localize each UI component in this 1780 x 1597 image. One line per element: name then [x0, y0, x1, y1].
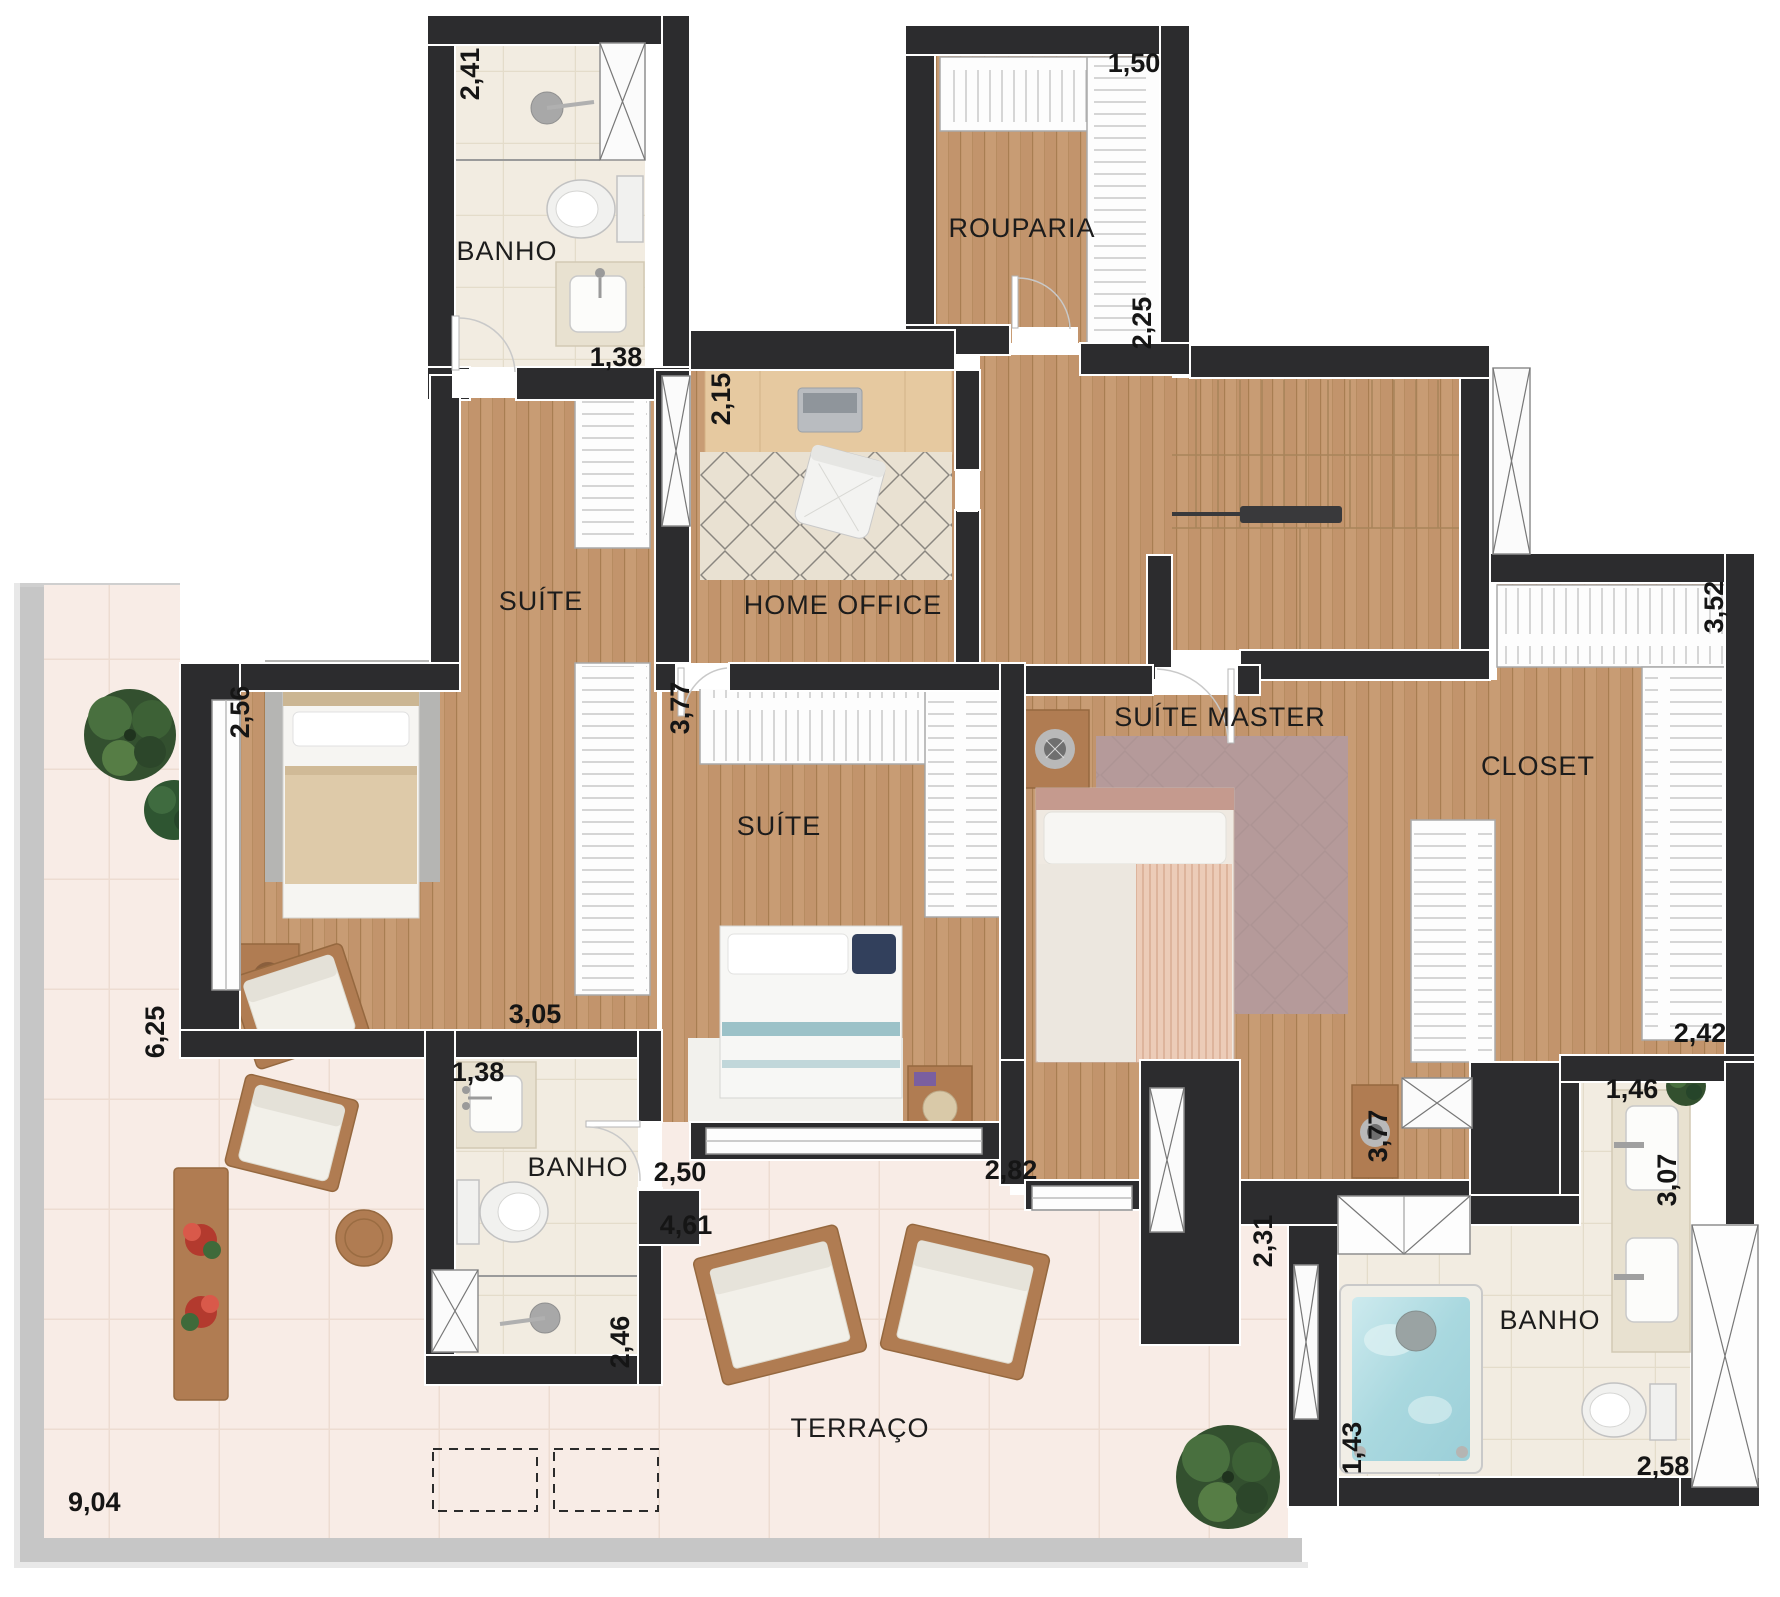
dim-6-25: 6,25	[140, 1006, 170, 1059]
room-label-suite-master: SUÍTE MASTER	[1114, 702, 1326, 732]
floorplan-page: { "rooms": { "banho_top": "BANHO", "roup…	[0, 0, 1780, 1597]
book	[914, 1072, 936, 1086]
room-label-banho-master: BANHO	[1499, 1305, 1600, 1335]
dim-1-43: 1,43	[1337, 1422, 1367, 1475]
dim-3-52: 3,52	[1699, 581, 1729, 634]
floor-plan: BANHO ROUPARIA SUÍTE HOME OFFICE SUÍTE S…	[0, 0, 1780, 1597]
room-label-suite1: SUÍTE	[499, 586, 584, 616]
casement-window	[1338, 1196, 1470, 1254]
room-label-home-office: HOME OFFICE	[744, 590, 943, 620]
window-east	[1692, 1225, 1758, 1487]
dim-3-05: 3,05	[509, 999, 562, 1029]
dim-2-15: 2,15	[706, 373, 736, 426]
room-label-suite2: SUÍTE	[737, 811, 822, 841]
dim-2-46: 2,46	[605, 1316, 635, 1369]
dim-2-31: 2,31	[1248, 1215, 1278, 1268]
dim-2-56: 2,56	[225, 686, 255, 739]
window-suite2-south	[706, 1128, 982, 1154]
shaft-banho-top	[600, 43, 645, 160]
room-label-terraco: TERRAÇO	[790, 1413, 929, 1443]
room-label-banho-top: BANHO	[456, 236, 557, 266]
plant-top-left	[84, 689, 176, 781]
stair-handrail	[1240, 506, 1342, 523]
dim-1-38-mid: 1,38	[452, 1057, 505, 1087]
shaft-stairs	[1493, 368, 1530, 554]
dim-1-50: 1,50	[1108, 48, 1161, 78]
dim-9-04: 9,04	[68, 1487, 121, 1517]
shaft-banho-middle	[432, 1270, 478, 1352]
dim-2-58: 2,58	[1637, 1451, 1690, 1481]
shaft-master-south	[1150, 1088, 1184, 1232]
dim-3-77-suite2: 3,77	[665, 682, 695, 735]
shaft-banho-master	[1294, 1265, 1318, 1419]
room-label-closet: CLOSET	[1481, 751, 1595, 781]
room-label-rouparia: ROUPARIA	[948, 213, 1095, 243]
dim-3-07: 3,07	[1652, 1154, 1682, 1207]
door-corridor	[957, 472, 978, 512]
dim-2-25: 2,25	[1127, 297, 1157, 350]
terrace-bench	[174, 1168, 228, 1400]
dim-4-61: 4,61	[660, 1210, 713, 1240]
dim-2-82: 2,82	[985, 1155, 1038, 1185]
dim-2-50: 2,50	[654, 1157, 707, 1187]
window-shaft-closet	[1402, 1078, 1472, 1128]
dim-1-46: 1,46	[1606, 1074, 1659, 1104]
dim-2-41: 2,41	[455, 48, 485, 101]
plant-bottom-right	[1176, 1425, 1280, 1529]
dim-2-42: 2,42	[1674, 1018, 1727, 1048]
dim-3-77-master: 3,77	[1363, 1110, 1393, 1163]
window-suite1	[212, 700, 240, 990]
tub-faucet	[1396, 1311, 1436, 1351]
room-label-banho-middle: BANHO	[527, 1152, 628, 1182]
shaft-home-office	[662, 376, 690, 526]
home-office-furniture	[700, 368, 952, 580]
window-master-south	[1032, 1186, 1132, 1210]
dim-1-38-top: 1,38	[590, 342, 643, 372]
